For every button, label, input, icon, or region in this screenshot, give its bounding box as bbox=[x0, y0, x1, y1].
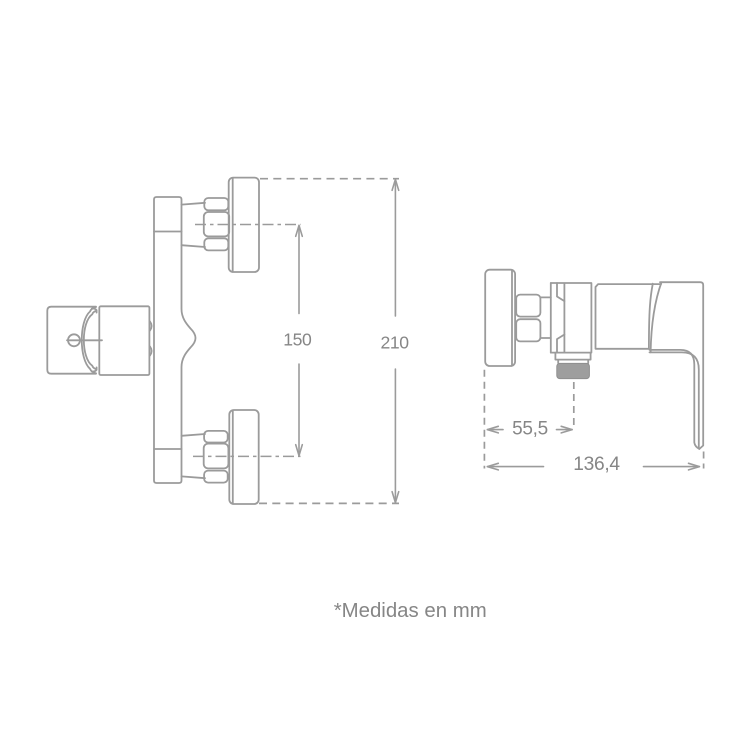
svg-text:210: 210 bbox=[381, 333, 410, 353]
svg-text:136,4: 136,4 bbox=[573, 454, 620, 475]
svg-text:150: 150 bbox=[283, 329, 312, 349]
svg-text:*Medidas en mm: *Medidas en mm bbox=[334, 600, 487, 622]
svg-text:55,5: 55,5 bbox=[512, 419, 548, 440]
